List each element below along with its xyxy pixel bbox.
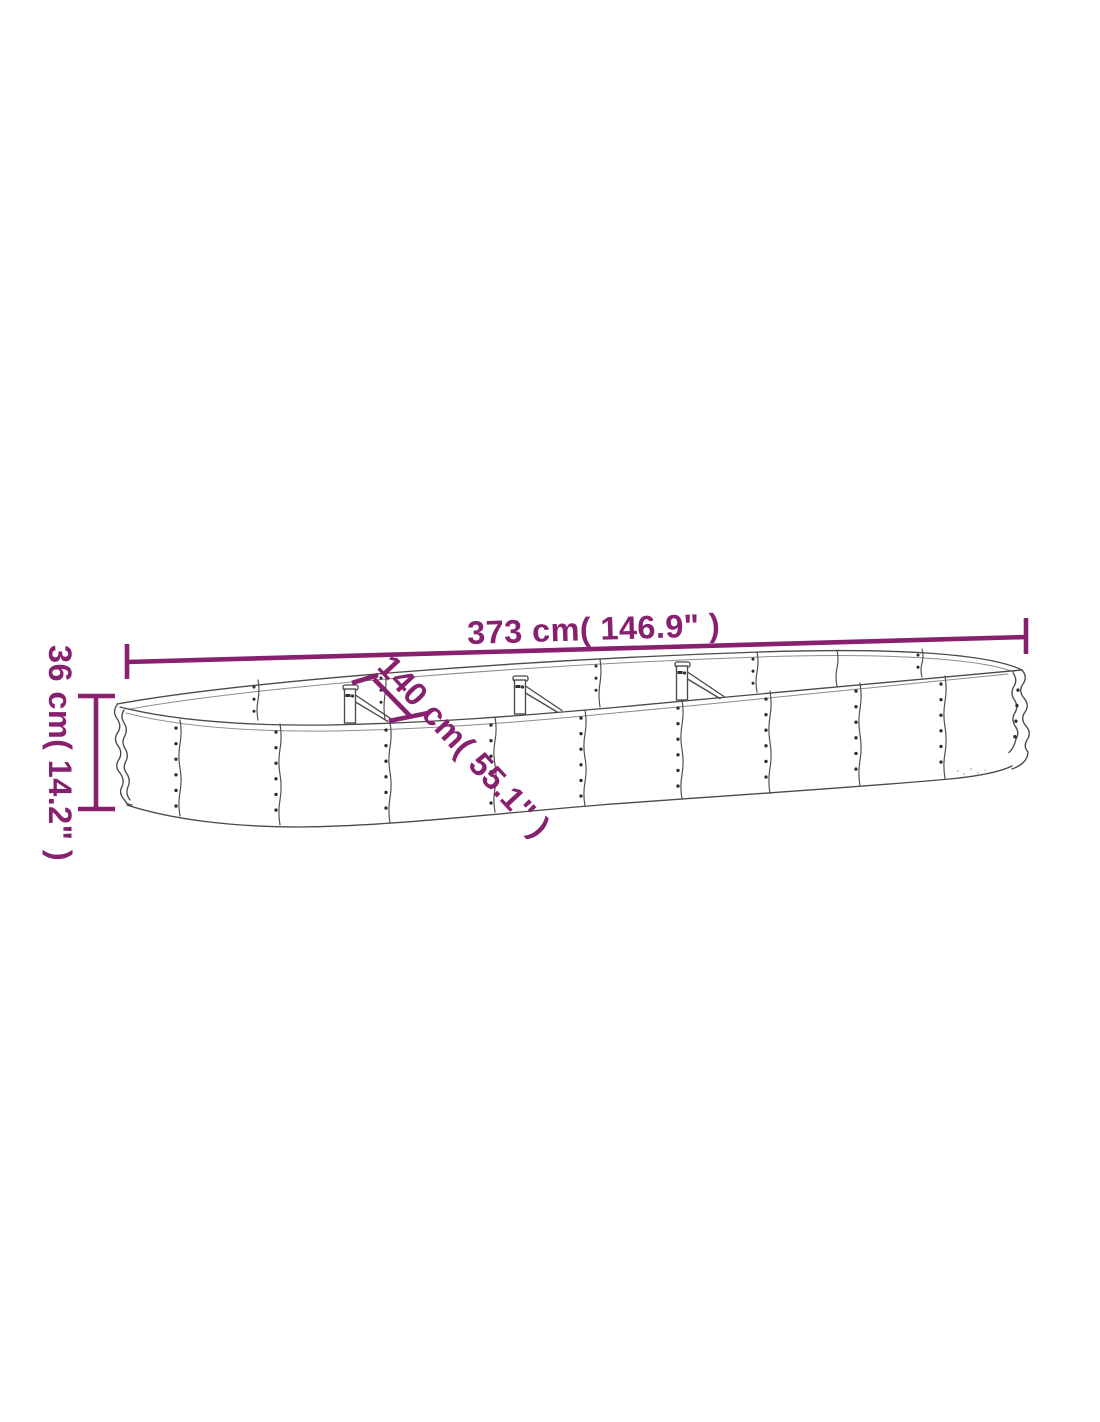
front-seam <box>859 683 861 786</box>
front-seam <box>179 720 181 816</box>
back-seam <box>756 652 758 692</box>
front-seam <box>279 724 281 825</box>
product-dimension-image: 373 cm( 146.9" ) 36 cm( 14.2" ) 140 cm( … <box>0 0 1100 1422</box>
dimension-annotations: 373 cm( 146.9" ) 36 cm( 14.2" ) 140 cm( … <box>42 607 1026 861</box>
right-end-inner-wave <box>1009 673 1018 753</box>
front-bottom-edge <box>127 766 1012 827</box>
post-screw <box>516 685 521 688</box>
support-post-2 <box>513 676 562 714</box>
diagram-svg: 373 cm( 146.9" ) 36 cm( 14.2" ) 140 cm( … <box>0 0 1100 1422</box>
left-end-corrugation <box>115 705 133 805</box>
front-seam <box>681 700 683 799</box>
post-screw <box>678 671 683 674</box>
front-seam <box>389 722 391 823</box>
post-brace <box>526 686 563 713</box>
front-wall-seams <box>176 676 946 825</box>
front-seam <box>769 691 771 793</box>
right-end-corrugation <box>1009 670 1029 769</box>
height-dimension-label: 36 cm( 14.2" ) <box>42 645 78 861</box>
planter-drawing <box>115 649 1030 827</box>
post-screw <box>683 671 686 674</box>
texture-speckles <box>957 768 986 775</box>
width-dimension-label: 140 cm( 55.1" ) <box>371 648 557 844</box>
support-post-3 <box>675 662 724 700</box>
post-screw <box>351 694 354 697</box>
back-seam <box>257 680 259 720</box>
post-brace <box>688 672 725 699</box>
post-screw <box>521 685 524 688</box>
front-seam <box>944 676 946 778</box>
front-seam <box>584 710 586 806</box>
height-dimension: 36 cm( 14.2" ) <box>42 645 115 861</box>
length-dimension: 373 cm( 146.9" ) <box>127 607 1026 679</box>
post-brace <box>356 695 393 722</box>
post-screw <box>346 694 351 697</box>
left-end-inner-wave <box>122 710 130 800</box>
back-seam <box>599 659 601 707</box>
